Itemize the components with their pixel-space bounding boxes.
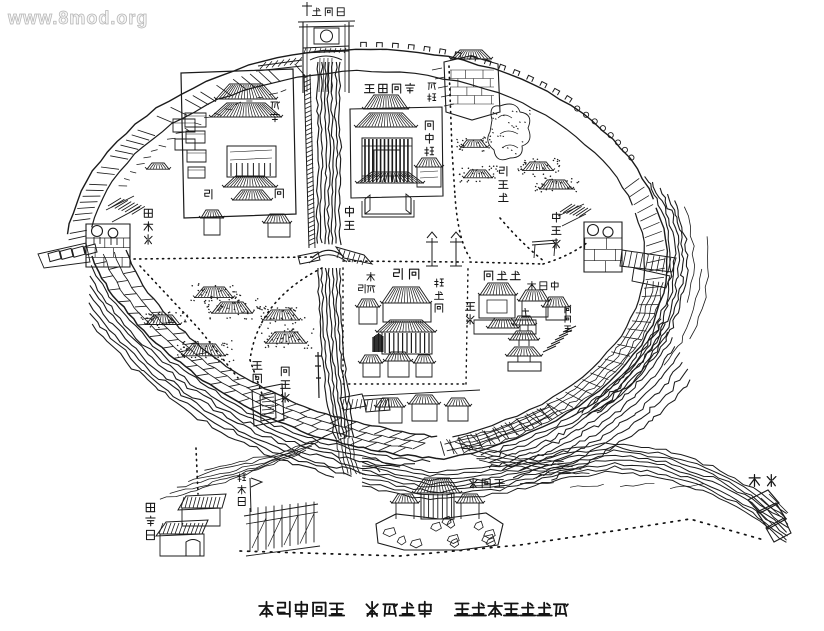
svg-text:www.8mod.org: www.8mod.org bbox=[7, 8, 148, 28]
